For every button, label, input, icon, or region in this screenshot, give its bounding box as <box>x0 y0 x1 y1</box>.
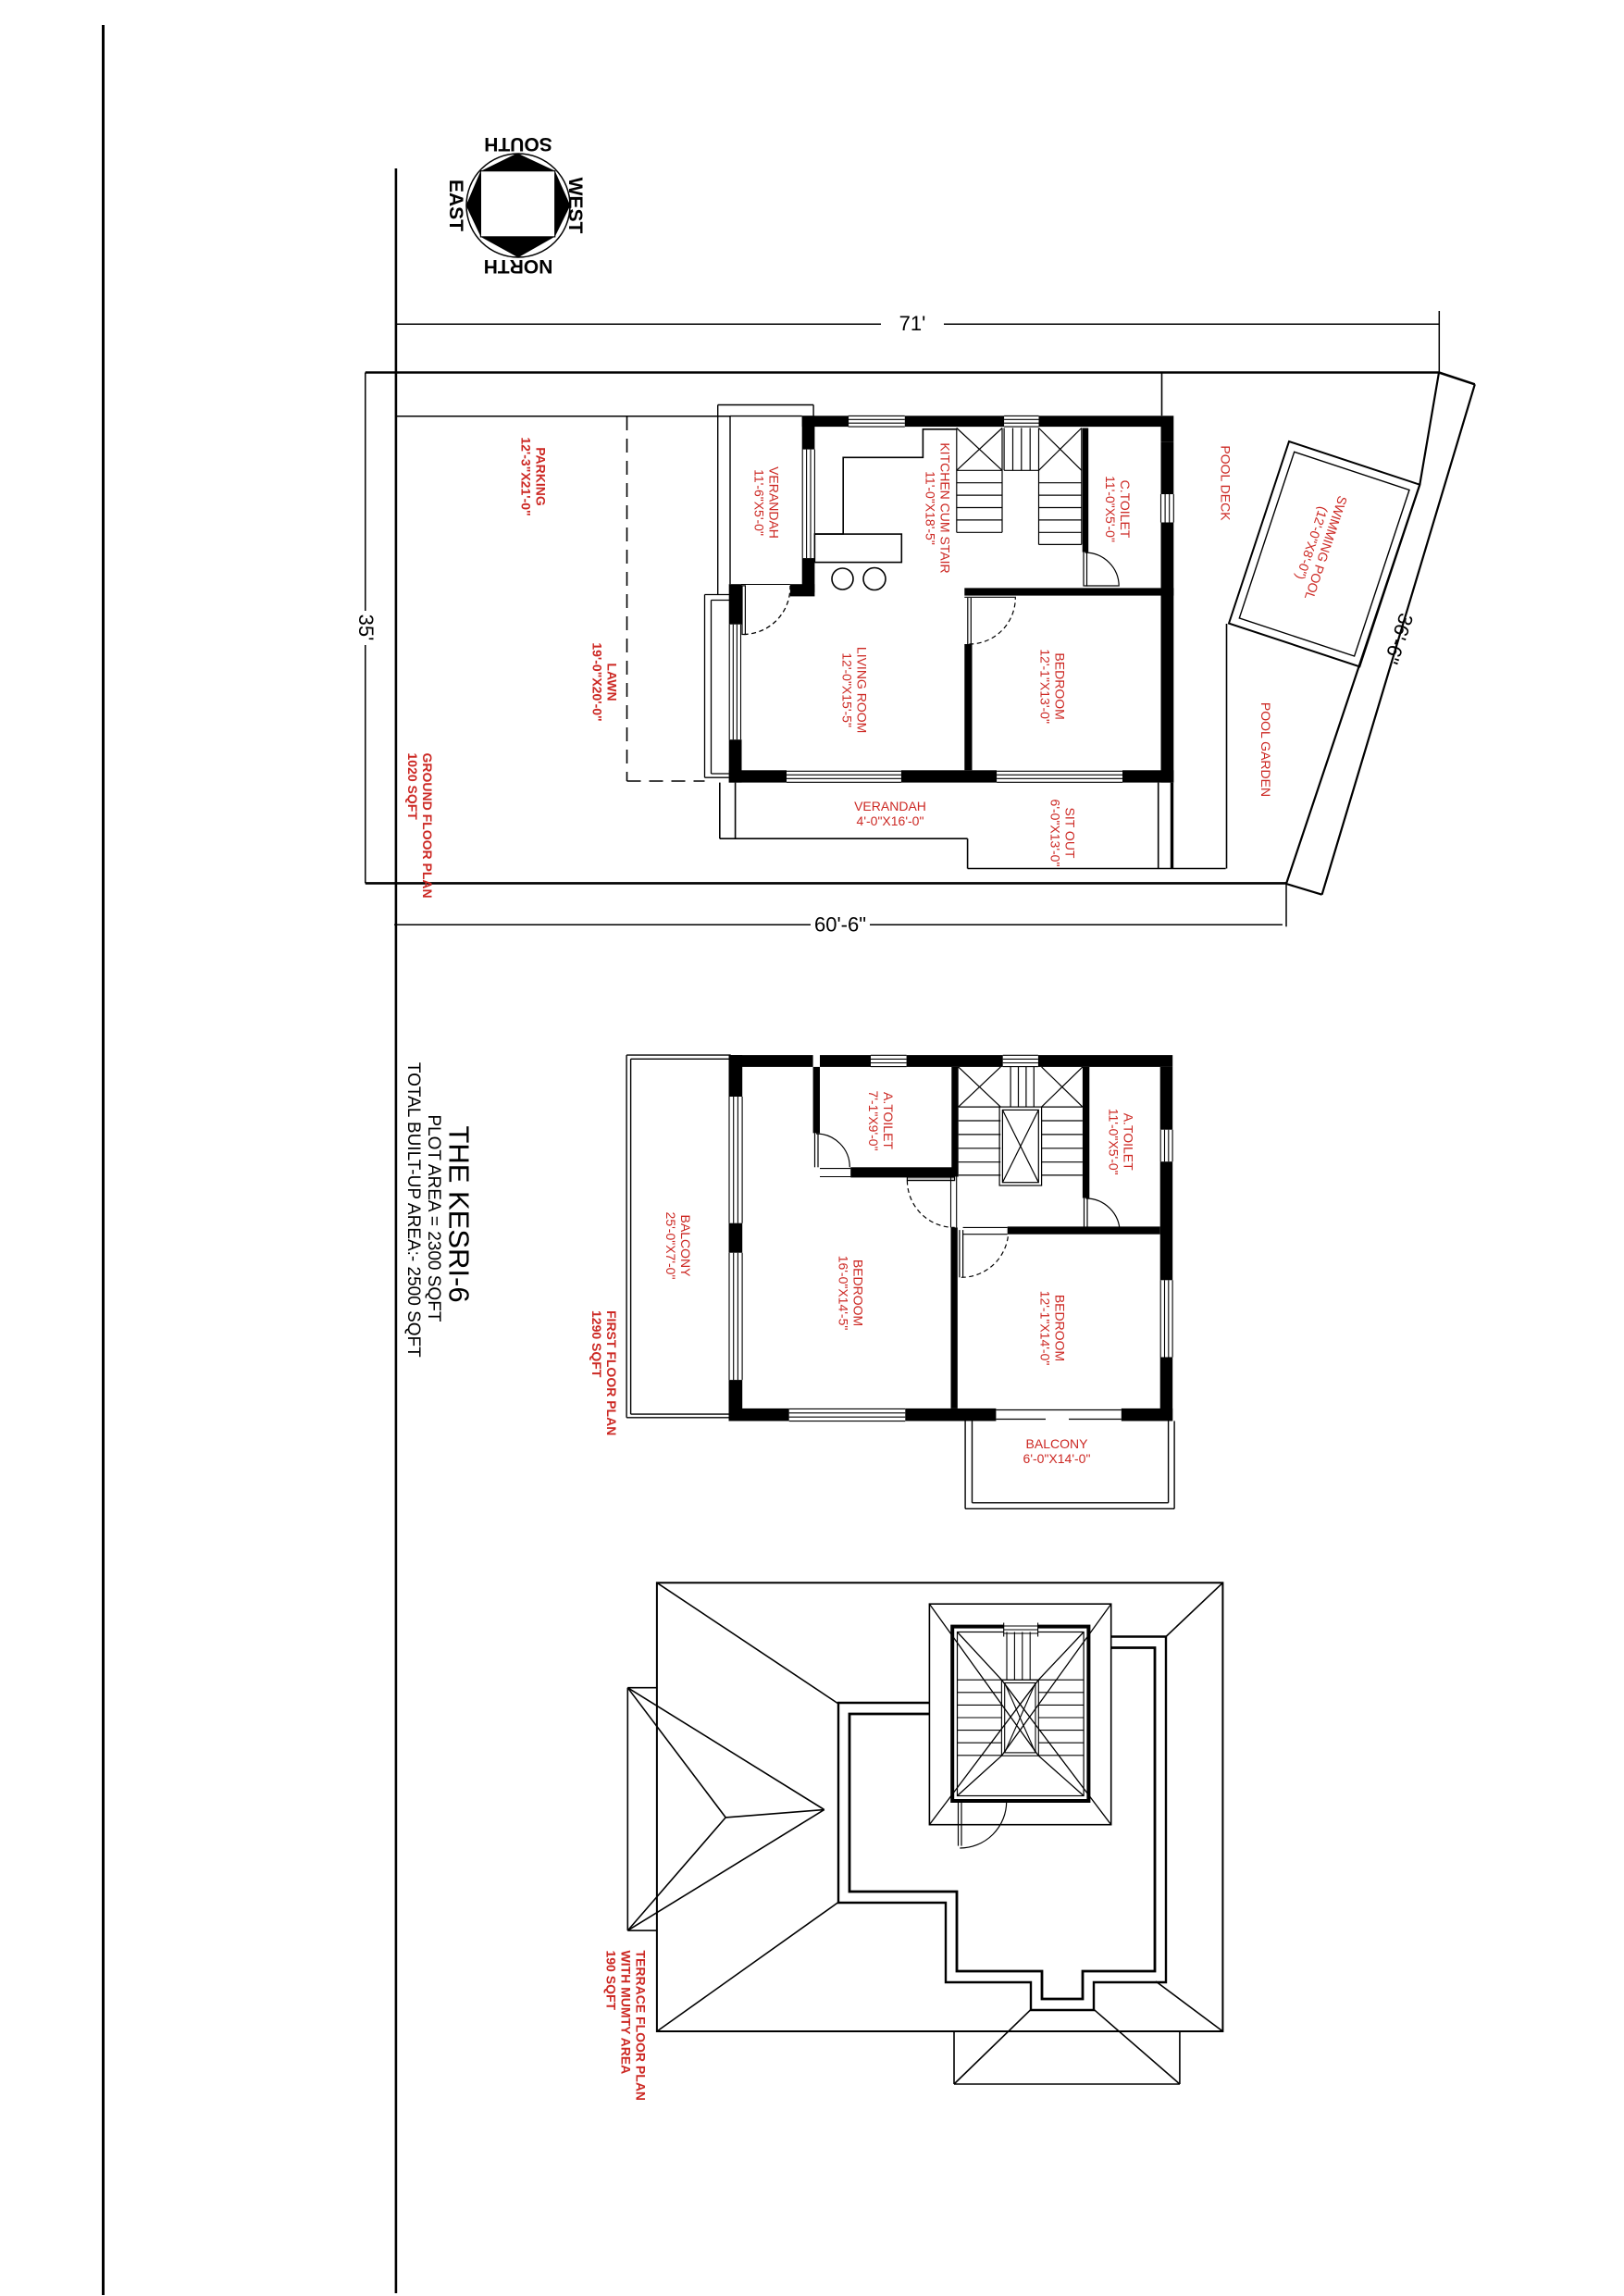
svg-text:71': 71' <box>899 312 926 335</box>
svg-text:BEDROOM12'-1"X13'-0": BEDROOM12'-1"X13'-0" <box>1037 649 1067 724</box>
svg-text:C.TOILET11'-0"X5'-0": C.TOILET11'-0"X5'-0" <box>1103 476 1133 542</box>
svg-text:WEST: WEST <box>564 178 586 234</box>
svg-text:PARKING12'-3"X21'-0": PARKING12'-3"X21'-0" <box>519 437 549 515</box>
svg-text:60'-6": 60'-6" <box>814 913 866 937</box>
svg-text:A.TOILET7'-1"X9'-0": A.TOILET7'-1"X9'-0" <box>866 1090 896 1150</box>
svg-text:35': 35' <box>354 614 378 641</box>
svg-text:BALCONY6'-0"X14'-0": BALCONY6'-0"X14'-0" <box>1023 1436 1091 1466</box>
svg-text:POOL GARDEN: POOL GARDEN <box>1258 702 1273 797</box>
svg-text:TOTAL BUILT-UP AREA:- 2500 SQF: TOTAL BUILT-UP AREA:- 2500 SQFT <box>403 1062 423 1358</box>
svg-text:NORTH: NORTH <box>484 255 553 277</box>
svg-text:THE KESRI-6: THE KESRI-6 <box>443 1125 476 1302</box>
svg-text:VERANDAH4'-0"X16'-0": VERANDAH4'-0"X16'-0" <box>854 799 926 828</box>
svg-text:BEDROOM12'-1"X14'-0": BEDROOM12'-1"X14'-0" <box>1038 1291 1068 1366</box>
svg-text:A.TOILET11'-0"X5'-0": A.TOILET11'-0"X5'-0" <box>1107 1109 1136 1175</box>
svg-text:VERANDAH11'-6"X5'-0": VERANDAH11'-6"X5'-0" <box>752 466 782 539</box>
svg-text:SIT OUT6'-0"X13'-0": SIT OUT6'-0"X13'-0" <box>1048 800 1077 867</box>
svg-text:LIVING ROOM12'-0"X15'-5": LIVING ROOM12'-0"X15'-5" <box>840 647 870 733</box>
svg-text:EAST: EAST <box>445 180 466 231</box>
svg-text:BALCONY25'-0"X7'-0": BALCONY25'-0"X7'-0" <box>663 1212 693 1280</box>
svg-text:POOL DECK: POOL DECK <box>1218 445 1233 521</box>
svg-text:SOUTH: SOUTH <box>484 133 552 155</box>
svg-text:PLOT AREA = 2300 SQFT: PLOT AREA = 2300 SQFT <box>424 1114 443 1322</box>
svg-text:BEDROOM16'-0"X14'-5": BEDROOM16'-0"X14'-5" <box>837 1256 866 1331</box>
